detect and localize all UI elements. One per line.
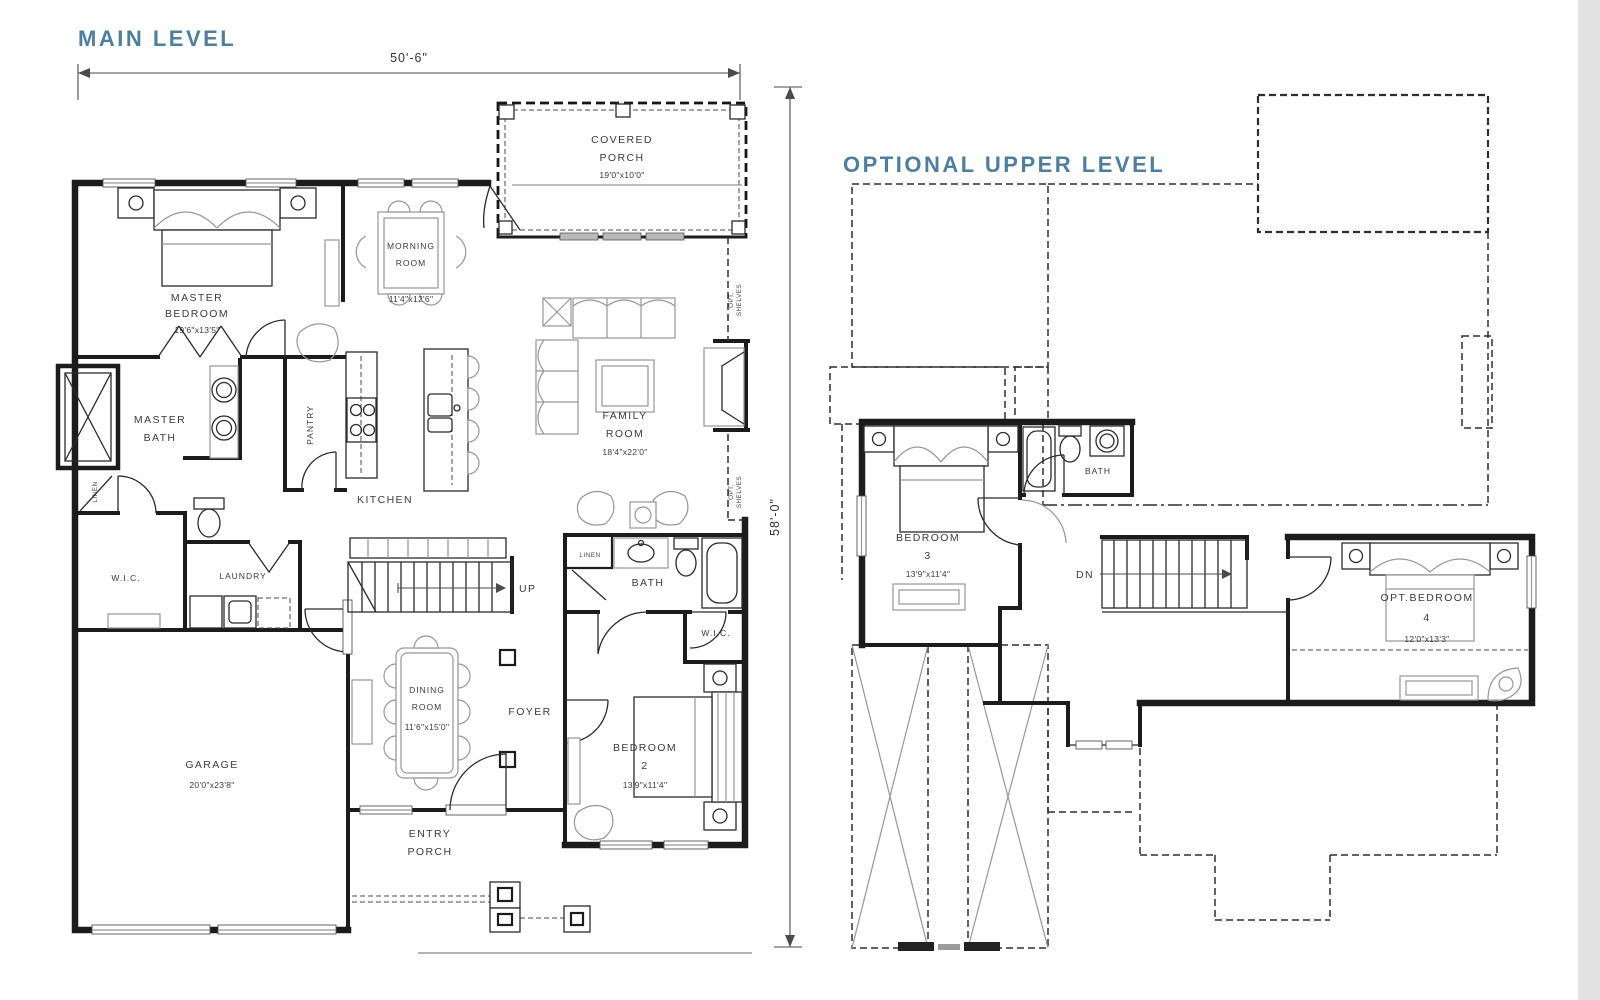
- door-swing: [1022, 500, 1066, 543]
- dining-room-label2: ROOM: [412, 702, 442, 712]
- bed: [118, 188, 316, 286]
- wic-door: [118, 476, 156, 513]
- bedroom2-label2: 2: [641, 760, 648, 772]
- up-label: UP: [519, 583, 536, 595]
- opt-shelves-label2: SHELVES: [736, 476, 743, 509]
- laundry-label: LAUNDRY: [219, 571, 266, 581]
- stairs-up: UP: [348, 538, 536, 612]
- morning-room: MORNING ROOM 11'4"x12'6": [356, 186, 520, 305]
- family-room-dims: 18'4"x22'0": [602, 447, 647, 457]
- dn-label: DN: [1076, 569, 1094, 581]
- master-bath-label2: BATH: [144, 432, 177, 444]
- armchair: [651, 491, 688, 525]
- stools: [468, 356, 479, 474]
- master-bedroom: MASTER BEDROOM 19'6"x13'5": [118, 188, 339, 362]
- width-dimension: 50'-6": [78, 51, 740, 100]
- plant: [1488, 668, 1521, 701]
- covered-porch-label2: PORCH: [600, 152, 645, 164]
- upper-level-title: OPTIONAL UPPER LEVEL: [843, 152, 1165, 177]
- bench: [893, 584, 965, 610]
- window-seat: [568, 738, 580, 804]
- wic-label: W.I.C.: [111, 573, 140, 583]
- buffet: [352, 680, 372, 744]
- height-dimension: 58'-0": [768, 87, 802, 947]
- foyer-label: FOYER: [508, 706, 551, 718]
- island: [424, 349, 468, 491]
- master-bath-label: MASTER: [134, 414, 186, 426]
- floor-plan-drawing: MAIN LEVEL 50'-6" 58'-0" COV: [0, 0, 1600, 1000]
- bedroom2-dims: 13'9"x11'4": [623, 780, 668, 790]
- entry-porch-label: ENTRY: [409, 828, 451, 840]
- opt-bedroom-4: OPT.BEDROOM 4 12'0"x13'3": [1288, 543, 1528, 701]
- bedroom2-door: [565, 700, 608, 743]
- family-room-label2: ROOM: [606, 428, 644, 440]
- floor-plan-sheet: MAIN LEVEL 50'-6" 58'-0" COV: [0, 0, 1600, 1000]
- wic2-label: W.I.C.: [701, 628, 730, 638]
- side-table: [630, 502, 656, 528]
- entry-porch-label2: PORCH: [408, 846, 453, 858]
- pantry-label: PANTRY: [305, 405, 315, 445]
- fireplace: [704, 348, 744, 426]
- closet-walls: [75, 468, 612, 568]
- dining-room-label: DINING: [409, 685, 445, 695]
- vanity: [614, 538, 668, 568]
- window-sill: [898, 942, 934, 951]
- family-room-label: FAMILY: [603, 410, 648, 422]
- window-sill: [964, 942, 1000, 951]
- bedroom4-label: OPT.BEDROOM: [1381, 592, 1474, 604]
- garage: GARAGE 20'0"x23'8": [92, 759, 336, 934]
- toilet: [1059, 426, 1081, 436]
- bedroom4-door: [1288, 557, 1331, 600]
- upper-bath: BATH: [1023, 426, 1124, 495]
- stairs-down: DN: [1076, 540, 1288, 612]
- shelf: [108, 614, 160, 628]
- height-dimension-label: 58'-0": [768, 498, 782, 536]
- garage-label: GARAGE: [185, 759, 238, 771]
- column: [500, 650, 515, 665]
- bed: [864, 426, 1018, 532]
- kitchen: KITCHEN: [346, 349, 479, 506]
- upper-level-plan: OPTIONAL UPPER LEVEL: [830, 95, 1536, 951]
- covered-porch: COVERED PORCH 19'0"x10'0": [498, 103, 746, 240]
- dining-room: DINING ROOM 11'6"x15'0": [352, 636, 470, 790]
- bench: [1400, 676, 1478, 700]
- opt-shelves-label2: SHELVES: [736, 284, 743, 317]
- opt-shelves-label: OPT.: [728, 484, 735, 500]
- morning-room-dims: 11'4"x12'6": [389, 294, 434, 304]
- master-bedroom-label: MASTER: [171, 292, 223, 304]
- bedroom3-dims: 13'9"x11'4": [906, 569, 951, 579]
- pantry: PANTRY: [302, 405, 336, 490]
- covered-porch-label: COVERED: [591, 134, 653, 146]
- freezer: [258, 598, 290, 628]
- bedroom4-dims: 12'0"x13'3": [1404, 634, 1449, 644]
- bedroom2-label: BEDROOM: [613, 742, 677, 754]
- toilet: [674, 538, 698, 549]
- bedroom3-label2: 3: [924, 550, 931, 562]
- bath-label: BATH: [632, 577, 665, 589]
- morning-room-label2: ROOM: [396, 258, 426, 268]
- bath-door: [598, 612, 648, 654]
- vanity: [210, 366, 238, 458]
- linen-door: [572, 570, 606, 600]
- corner-chair: [574, 805, 613, 839]
- main-bath: LINEN BATH W.I.C.: [572, 538, 742, 654]
- opt-shelves-label: OPT.: [728, 292, 735, 308]
- window-sill: [938, 944, 960, 950]
- bedroom4-label2: 4: [1423, 612, 1430, 624]
- linen-door: [80, 476, 112, 511]
- covered-porch-dims: 19'0"x10'0": [599, 170, 644, 180]
- bedroom-door: [246, 320, 285, 357]
- dresser: [325, 240, 339, 306]
- width-dimension-label: 50'-6": [390, 51, 428, 65]
- morning-room-label: MORNING: [387, 241, 435, 251]
- main-level-plan: MAIN LEVEL 50'-6" 58'-0" COV: [58, 26, 802, 953]
- page-edge: [1578, 0, 1600, 1000]
- upper-bath-label: BATH: [1085, 466, 1111, 476]
- bedroom-3: BEDROOM 3 13'9"x11'4": [864, 426, 1066, 610]
- bedroom3-label: BEDROOM: [896, 532, 960, 544]
- toilet: [194, 498, 224, 509]
- armchair: [577, 491, 614, 525]
- linen-label: LINEN: [579, 552, 600, 559]
- dining-room-dims: 11'6"x15'0": [405, 722, 450, 732]
- bedroom-2: BEDROOM 2 13'9"x11'4": [568, 664, 742, 840]
- bath-door: [1024, 455, 1064, 495]
- family-room: OPT. SHELVES OPT. SHELVES FAMILY ROOM 18…: [536, 237, 745, 528]
- pantry-door: [302, 452, 336, 490]
- wic-laundry: W.I.C. LAUNDRY: [108, 542, 352, 654]
- bathtub: [702, 538, 742, 608]
- coffee-table: [596, 360, 654, 412]
- kitchen-label: KITCHEN: [357, 494, 413, 506]
- dryer: [190, 596, 222, 628]
- garage-dims: 20'0"x23'8": [189, 780, 234, 790]
- master-bedroom-label2: BEDROOM: [165, 308, 229, 320]
- main-level-title: MAIN LEVEL: [78, 26, 236, 51]
- laundry-door: [248, 542, 290, 572]
